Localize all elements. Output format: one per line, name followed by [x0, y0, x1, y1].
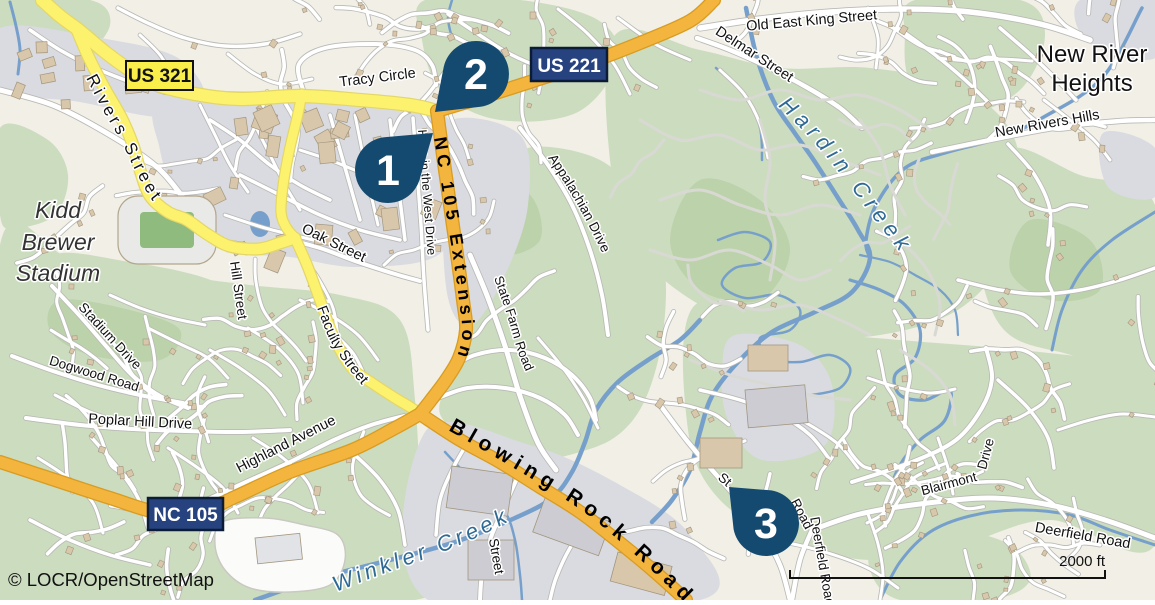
svg-text:Kidd: Kidd: [35, 197, 82, 223]
svg-text:© LOCR/OpenStreetMap: © LOCR/OpenStreetMap: [8, 569, 214, 590]
svg-text:2: 2: [464, 51, 488, 99]
svg-text:1: 1: [376, 147, 400, 195]
svg-text:US 221: US 221: [537, 56, 601, 77]
svg-text:Heights: Heights: [1051, 70, 1132, 97]
svg-text:Brewer: Brewer: [22, 229, 96, 255]
svg-text:NC 105: NC 105: [153, 505, 218, 526]
svg-text:3: 3: [754, 500, 778, 548]
svg-text:2000 ft: 2000 ft: [1059, 553, 1106, 570]
svg-text:New River: New River: [1037, 41, 1148, 68]
svg-text:US 321: US 321: [128, 66, 192, 87]
svg-text:Stadium: Stadium: [16, 260, 100, 286]
